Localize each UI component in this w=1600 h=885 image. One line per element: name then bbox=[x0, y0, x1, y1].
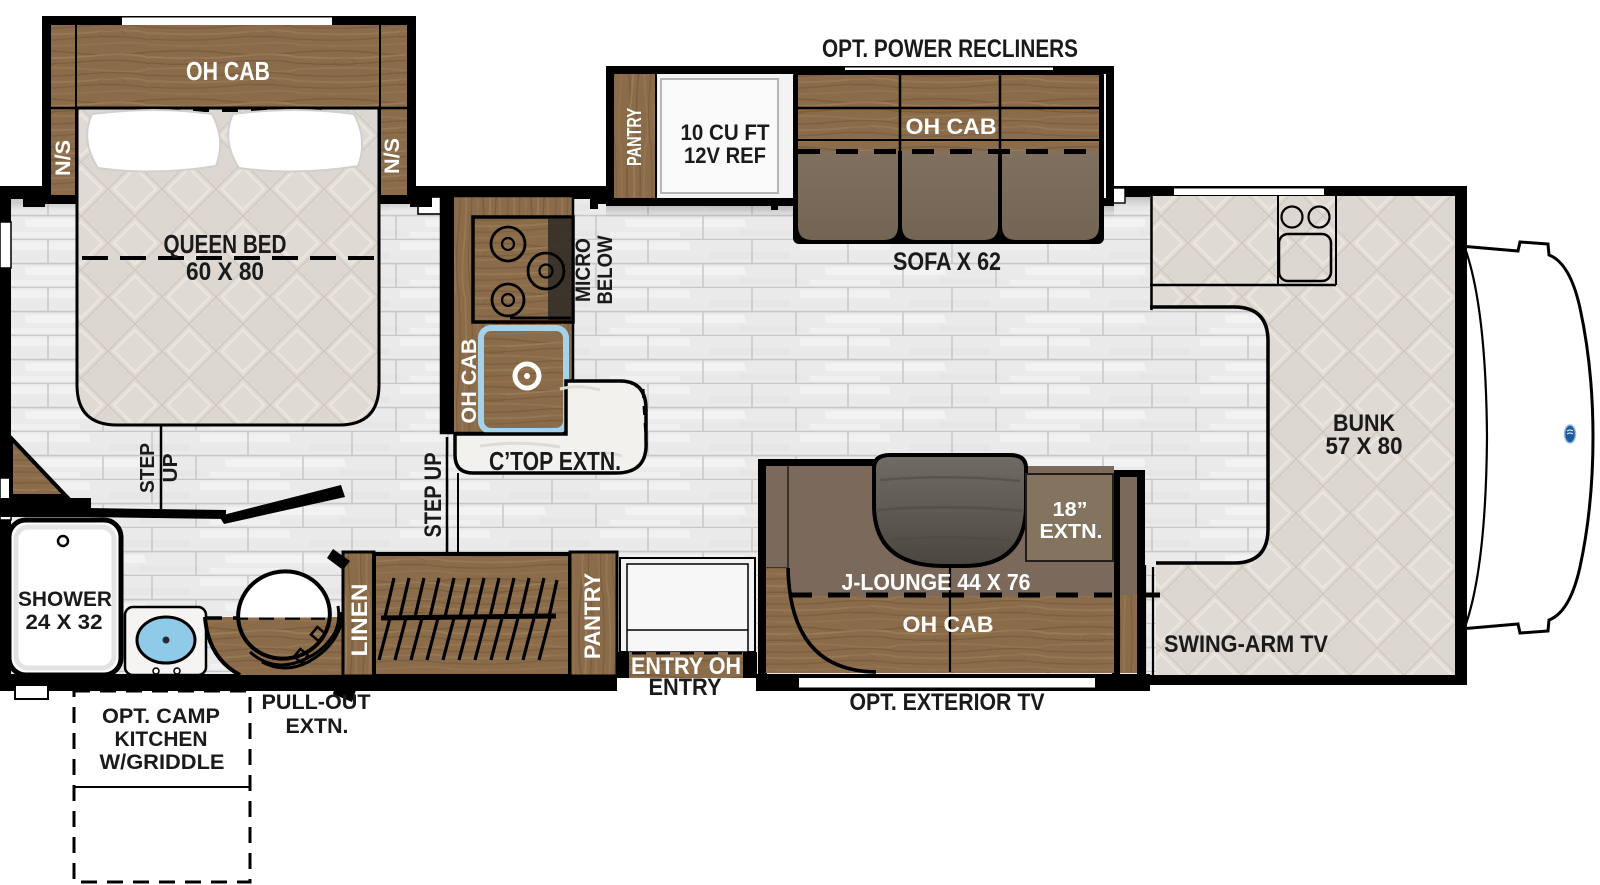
svg-text:24 X 32: 24 X 32 bbox=[26, 611, 103, 634]
svg-text:MICRO: MICRO bbox=[572, 238, 595, 302]
svg-text:SOFA X 62: SOFA X 62 bbox=[893, 248, 1001, 276]
svg-text:EXTN.: EXTN. bbox=[1040, 521, 1103, 543]
svg-text:SWING-ARM TV: SWING-ARM TV bbox=[1164, 631, 1328, 658]
svg-text:LINEN: LINEN bbox=[347, 584, 372, 657]
svg-text:PANTRY: PANTRY bbox=[624, 108, 646, 166]
svg-text:OPT. CAMP: OPT. CAMP bbox=[102, 705, 220, 728]
svg-text:N/S: N/S bbox=[381, 138, 404, 174]
svg-text:57 X 80: 57 X 80 bbox=[1326, 433, 1403, 460]
svg-text:PULL-OUT: PULL-OUT bbox=[262, 691, 371, 714]
svg-text:18”: 18” bbox=[1053, 499, 1088, 521]
svg-text:12V REF: 12V REF bbox=[684, 143, 766, 168]
svg-text:N/S: N/S bbox=[52, 140, 75, 176]
svg-text:KITCHEN: KITCHEN bbox=[115, 728, 208, 751]
svg-text:W/GRIDDLE: W/GRIDDLE bbox=[100, 751, 225, 774]
svg-text:OH CAB: OH CAB bbox=[458, 339, 481, 424]
svg-text:STEP UP: STEP UP bbox=[420, 453, 447, 538]
svg-text:C’TOP EXTN.: C’TOP EXTN. bbox=[489, 446, 621, 476]
svg-text:ENTRY: ENTRY bbox=[649, 674, 722, 701]
svg-text:QUEEN BED: QUEEN BED bbox=[164, 229, 287, 259]
svg-text:OPT. POWER RECLINERS: OPT. POWER RECLINERS bbox=[822, 35, 1078, 63]
svg-text:SHOWER: SHOWER bbox=[18, 588, 112, 611]
svg-text:J-LOUNGE 44 X 76: J-LOUNGE 44 X 76 bbox=[842, 569, 1031, 595]
svg-text:60 X 80: 60 X 80 bbox=[186, 258, 264, 286]
svg-text:UP: UP bbox=[160, 454, 182, 483]
svg-text:10 CU FT: 10 CU FT bbox=[681, 120, 771, 145]
svg-text:OH CAB: OH CAB bbox=[903, 612, 994, 637]
svg-text:PANTRY: PANTRY bbox=[580, 573, 605, 659]
svg-text:STEP: STEP bbox=[137, 443, 159, 493]
svg-text:BELOW: BELOW bbox=[594, 235, 617, 304]
svg-text:OH CAB: OH CAB bbox=[906, 114, 997, 139]
svg-text:OPT. EXTERIOR TV: OPT. EXTERIOR TV bbox=[850, 689, 1045, 716]
svg-text:OH CAB: OH CAB bbox=[186, 56, 270, 86]
svg-text:EXTN.: EXTN. bbox=[286, 715, 349, 738]
